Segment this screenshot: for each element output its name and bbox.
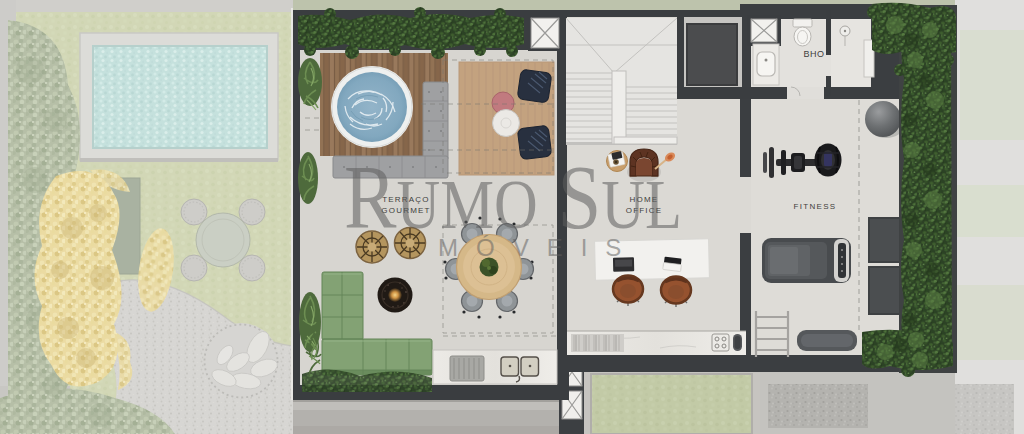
svg-text:FITNESS: FITNESS	[794, 202, 837, 211]
svg-text:BHO: BHO	[803, 49, 824, 59]
svg-text:MÓVEIS: MÓVEIS	[438, 234, 639, 261]
